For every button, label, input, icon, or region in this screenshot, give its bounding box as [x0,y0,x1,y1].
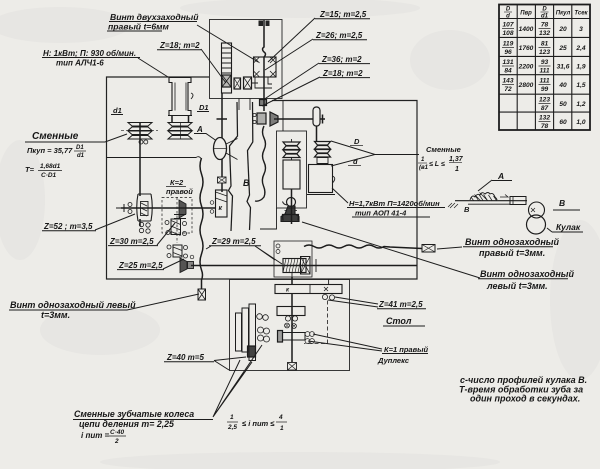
svg-text:72: 72 [504,86,512,93]
svg-text:Пкуп = 35,77: Пкуп = 35,77 [27,146,73,155]
svg-text:С·40: С·40 [110,429,124,436]
svg-text:правый t=6мм: правый t=6мм [108,22,169,32]
svg-text:1,2: 1,2 [576,101,585,108]
svg-text:78: 78 [541,22,549,29]
svg-text:2: 2 [114,438,119,445]
svg-text:d1: d1 [541,14,549,20]
svg-text:Z=29 m=2,5: Z=29 m=2,5 [211,237,256,246]
svg-text:≤ L ≤: ≤ L ≤ [429,161,445,168]
svg-text:60: 60 [559,119,567,126]
svg-text:2800: 2800 [518,82,534,89]
svg-text:84: 84 [504,68,512,75]
svg-text:с-число профилей кулака В.: с-число профилей кулака В. [460,375,587,385]
svg-text:108: 108 [502,30,513,37]
svg-text:1,9: 1,9 [576,64,585,71]
svg-text:В: В [559,198,565,208]
svg-text:Дуплекс: Дуплекс [377,356,410,365]
svg-text:d: d [353,157,358,166]
svg-text:Z=41 m=2,5: Z=41 m=2,5 [378,300,423,309]
svg-text:Винт двухзаходный: Винт двухзаходный [110,12,199,22]
svg-text:2200: 2200 [518,64,534,71]
svg-text:d: d [506,14,510,20]
svg-text:1,68d1: 1,68d1 [40,163,61,170]
svg-text:Z=36; m=2: Z=36; m=2 [321,55,362,64]
svg-text:Винт однозаходный левый: Винт однозаходный левый [10,300,136,310]
svg-text:Z=52 ; m=3,5: Z=52 ; m=3,5 [43,222,93,231]
svg-text:t=3мм.: t=3мм. [41,310,70,320]
svg-text:Н=1,7кВт П=1420об/мин: Н=1,7кВт П=1420об/мин [349,199,440,208]
svg-text:1: 1 [280,425,284,432]
svg-text:87: 87 [541,105,549,112]
svg-text:d1: d1 [113,106,122,115]
svg-text:143: 143 [502,78,513,85]
svg-text:81: 81 [541,41,549,48]
svg-text:i пит =: i пит = [81,431,110,440]
svg-text:50: 50 [559,101,567,108]
svg-text:2,4: 2,4 [575,45,585,52]
svg-text:правой: правой [166,187,193,196]
svg-text:1: 1 [230,414,234,421]
svg-text:25: 25 [558,45,567,52]
svg-text:К=1 правый: К=1 правый [384,345,429,354]
svg-text:132: 132 [539,115,550,122]
svg-text:2,5: 2,5 [227,424,237,431]
svg-text:Сменные зубчатые колеса: Сменные зубчатые колеса [74,409,194,419]
svg-text:Z=40 m=5: Z=40 m=5 [166,353,204,362]
svg-text:78: 78 [541,123,549,130]
svg-text:132: 132 [539,30,550,37]
svg-text:111: 111 [539,68,549,75]
svg-text:40: 40 [558,82,567,89]
svg-text:Н: 1кВт; П: 930 об/мин.: Н: 1кВт; П: 930 об/мин. [43,49,136,58]
svg-text:d1: d1 [77,153,85,159]
svg-text:Z=18; m=2: Z=18; m=2 [159,41,200,50]
svg-text:один проход в секундах.: один проход в секундах. [470,394,580,404]
svg-text:Тсек: Тсек [574,11,588,17]
svg-text:тип АЛЧ1-6: тип АЛЧ1-6 [56,59,104,68]
svg-text:96: 96 [504,49,512,56]
svg-text:1760: 1760 [519,45,534,52]
svg-text:цепи деления m= 2,25: цепи деления m= 2,25 [79,419,174,429]
svg-text:А: А [196,125,203,134]
svg-text:левый t=3мм.: левый t=3мм. [486,281,548,291]
svg-text:Z=26; m=2,5: Z=26; m=2,5 [315,31,363,40]
svg-text:Пкул: Пкул [556,11,571,17]
svg-text:123: 123 [539,49,550,56]
svg-text:Сменные: Сменные [426,145,461,154]
svg-text:Стол: Стол [386,316,412,326]
svg-text:93: 93 [541,59,549,66]
svg-text:≤ i пит ≤: ≤ i пит ≤ [242,419,275,428]
svg-text:правый t=3мм.: правый t=3мм. [479,248,545,258]
svg-text:В: В [243,178,250,188]
svg-text:Z=30 m=2,5: Z=30 m=2,5 [109,237,154,246]
svg-text:3: 3 [579,26,583,33]
svg-text:К=2: К=2 [170,178,184,187]
svg-text:119: 119 [503,41,514,48]
svg-text:Сменные: Сменные [32,131,79,142]
svg-text:31,6: 31,6 [557,64,570,71]
svg-text:С·D1: С·D1 [41,172,57,179]
svg-text:Винт однозаходный: Винт однозаходный [480,269,574,279]
svg-text:1,37: 1,37 [449,156,464,163]
svg-text:Z=15; m=2,5: Z=15; m=2,5 [319,10,367,19]
svg-text:Пвр: Пвр [520,11,532,17]
svg-text:1,5: 1,5 [576,82,585,89]
svg-text:99: 99 [541,86,549,93]
svg-text:В: В [464,205,470,214]
svg-text:123: 123 [539,97,550,104]
svg-text:4: 4 [278,414,283,421]
svg-text:к: к [219,205,223,212]
svg-text:D: D [354,137,360,146]
svg-text:D1: D1 [199,103,209,112]
svg-text:Z=25 m=2,5: Z=25 m=2,5 [118,261,163,270]
svg-text:1,0: 1,0 [576,119,585,126]
svg-text:(в1: (в1 [419,165,429,171]
svg-text:D1: D1 [76,145,84,151]
svg-text:1: 1 [455,166,459,173]
svg-text:D: D [506,7,511,13]
svg-text:А: А [497,171,504,181]
svg-text:1400: 1400 [519,26,534,33]
svg-text:107: 107 [502,22,513,29]
svg-text:тип АОП 41-4: тип АОП 41-4 [355,209,407,218]
svg-text:Кулак: Кулак [556,222,581,232]
svg-text:131: 131 [502,59,513,66]
svg-text:Z=18; m=2: Z=18; m=2 [322,69,363,78]
svg-text:D: D [542,7,547,13]
svg-text:Винт однозаходный: Винт однозаходный [465,237,559,247]
svg-text:20: 20 [558,26,567,33]
svg-text:Т=: Т= [25,165,35,174]
svg-text:111: 111 [539,78,549,85]
